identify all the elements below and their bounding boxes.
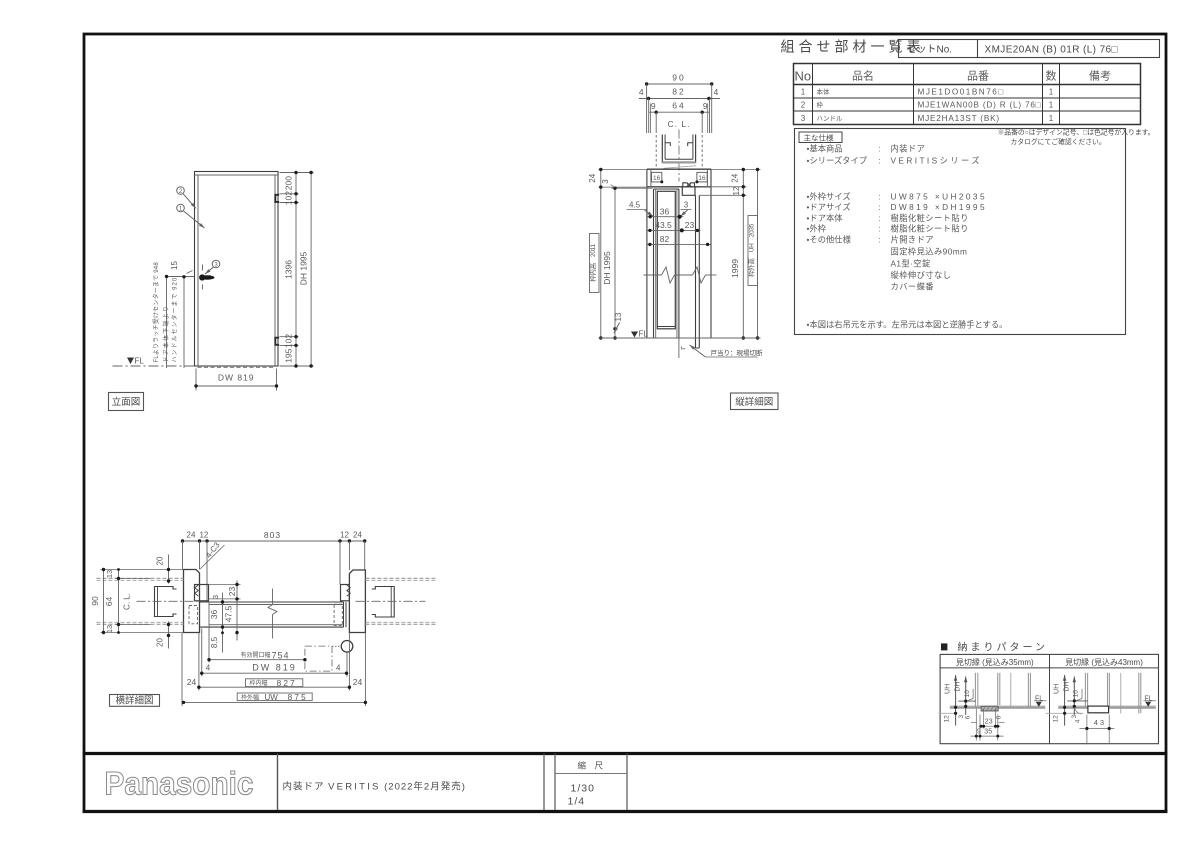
svg-text:UW875 ×UH2035: UW875 ×UH2035: [891, 192, 987, 202]
svg-text:DH: DH: [955, 681, 962, 691]
svg-text:16: 16: [698, 175, 706, 182]
svg-text:43: 43: [1094, 718, 1106, 727]
svg-text:枠内高 2011: 枠内高 2011: [588, 244, 597, 282]
svg-text:FLよりラッチ受けセンターまで 948: FLよりラッチ受けセンターまで 948: [152, 262, 160, 363]
svg-text:195: 195: [284, 348, 294, 362]
svg-text:枠外高 UH 2035: 枠外高 UH 2035: [746, 223, 755, 277]
svg-text:DW 819: DW 819: [218, 373, 255, 383]
svg-text:102: 102: [284, 334, 294, 348]
svg-text:C. L.: C. L.: [123, 593, 132, 610]
svg-text:90: 90: [672, 73, 685, 83]
svg-text:36: 36: [660, 206, 670, 216]
svg-text:43.5: 43.5: [655, 220, 672, 230]
svg-text:1/30: 1/30: [571, 783, 595, 795]
svg-text:•シリーズタイプ: •シリーズタイプ: [807, 156, 868, 166]
svg-text:803: 803: [264, 530, 281, 540]
svg-text:35: 35: [984, 729, 992, 736]
svg-text:A1型·空錠: A1型·空錠: [891, 259, 931, 269]
svg-text:23: 23: [685, 220, 695, 230]
svg-text::: :: [879, 202, 881, 212]
svg-text:24: 24: [187, 677, 197, 687]
svg-text:2: 2: [801, 101, 806, 110]
svg-text:12: 12: [199, 531, 208, 540]
svg-text:1: 1: [801, 88, 806, 97]
svg-text:数: 数: [1046, 70, 1057, 83]
svg-text:12: 12: [732, 186, 741, 195]
svg-text:64: 64: [672, 101, 685, 111]
svg-text:•本図は右吊元を示す。左吊元は本図と逆勝手とする。: •本図は右吊元を示す。左吊元は本図と逆勝手とする。: [807, 320, 1008, 330]
svg-text:1: 1: [1049, 114, 1054, 123]
svg-text:9: 9: [703, 101, 708, 111]
svg-text:見切縁 (見込み43mm): 見切縁 (見込み43mm): [1065, 657, 1143, 667]
svg-text:見切縁 (見込み35mm): 見切縁 (見込み35mm): [956, 657, 1034, 667]
svg-text:4: 4: [1074, 719, 1081, 723]
svg-text:•ドア本体: •ドア本体: [807, 213, 844, 223]
svg-text::: :: [879, 144, 881, 154]
svg-text:24: 24: [588, 173, 597, 182]
svg-text:6: 6: [996, 715, 1003, 719]
svg-text:3: 3: [601, 179, 610, 184]
svg-text::: :: [879, 224, 881, 234]
svg-text:200: 200: [284, 176, 294, 190]
svg-text:縦詳細図: 縦詳細図: [735, 396, 773, 408]
svg-text:1: 1: [1049, 88, 1054, 97]
svg-text:セットNo.: セットNo.: [907, 44, 953, 56]
svg-text:754: 754: [272, 651, 290, 661]
svg-text:縮 尺: 縮 尺: [578, 761, 604, 771]
svg-text:82: 82: [660, 234, 670, 244]
svg-text:47.5: 47.5: [223, 605, 233, 622]
svg-text:•外枠: •外枠: [807, 224, 827, 234]
svg-text::: :: [879, 156, 881, 166]
svg-text:•その他仕様: •その他仕様: [807, 235, 852, 245]
svg-text:立面図: 立面図: [112, 396, 141, 408]
svg-text:片開きドア: 片開きドア: [891, 235, 935, 245]
svg-text:固定枠見込み90mm: 固定枠見込み90mm: [891, 247, 968, 257]
svg-text:品名: 品名: [852, 69, 874, 83]
svg-text:9: 9: [651, 101, 656, 111]
svg-text:12: 12: [1052, 715, 1059, 723]
svg-text:102: 102: [284, 191, 294, 205]
svg-text:10: 10: [1073, 690, 1080, 698]
svg-text:4: 4: [206, 664, 211, 673]
svg-text:カタログにてご確認ください。: カタログにてご確認ください。: [1011, 137, 1106, 146]
svg-text:24: 24: [353, 531, 362, 540]
svg-text:DH: DH: [1064, 681, 1071, 691]
svg-text:VERITISシリーズ: VERITISシリーズ: [891, 156, 982, 166]
svg-text:有効開口幅: 有効開口幅: [241, 651, 271, 659]
svg-text:ドア本体下端より: ドア本体下端より: [162, 305, 170, 362]
svg-text:備考: 備考: [1089, 70, 1111, 83]
svg-text:16: 16: [653, 175, 661, 182]
svg-text:本体: 本体: [817, 87, 831, 96]
svg-text:36: 36: [209, 610, 219, 620]
svg-text:13: 13: [105, 570, 114, 578]
svg-text:82: 82: [672, 87, 685, 97]
svg-text:1999: 1999: [730, 259, 740, 278]
svg-text:64: 64: [104, 597, 114, 607]
svg-text:20: 20: [156, 638, 165, 647]
svg-text:10: 10: [964, 690, 971, 698]
svg-text::: :: [879, 213, 881, 223]
svg-text:品番: 品番: [967, 70, 989, 83]
svg-text:8.5: 8.5: [210, 636, 219, 648]
svg-text:1/4: 1/4: [568, 796, 586, 808]
svg-text:主な仕様: 主な仕様: [804, 133, 834, 143]
svg-text:6: 6: [964, 715, 971, 719]
svg-text:23: 23: [985, 719, 993, 726]
svg-text:UH: UH: [1053, 684, 1060, 694]
svg-text:UW: UW: [265, 693, 279, 702]
svg-text:13: 13: [105, 625, 114, 633]
svg-text:24: 24: [731, 173, 740, 182]
svg-text:DW819 ×DH1995: DW819 ×DH1995: [891, 202, 987, 212]
svg-text:24: 24: [187, 531, 196, 540]
svg-text:納まりパターン: 納まりパターン: [958, 641, 1049, 654]
svg-text:•ドアサイズ: •ドアサイズ: [807, 202, 851, 212]
svg-text:樹脂化粧シート貼り: 樹脂化粧シート貼り: [891, 224, 969, 234]
svg-text:•基本商品: •基本商品: [807, 144, 843, 154]
svg-text:23: 23: [227, 587, 237, 597]
svg-text:枠内幅: 枠内幅: [250, 679, 268, 687]
svg-text::: :: [879, 192, 881, 202]
svg-text:FL: FL: [639, 330, 649, 339]
svg-text:875: 875: [288, 692, 308, 702]
svg-text:Panasonic: Panasonic: [105, 766, 254, 802]
svg-text:組合せ部材一覧表: 組合せ部材一覧表: [781, 39, 925, 55]
svg-text:MJE2HA13ST (BK): MJE2HA13ST (BK): [918, 114, 1000, 123]
svg-text:12: 12: [340, 531, 349, 540]
svg-text:15: 15: [170, 261, 179, 270]
svg-text:3: 3: [801, 114, 806, 123]
svg-text:4: 4: [336, 664, 341, 673]
svg-text:•外枠サイズ: •外枠サイズ: [807, 192, 851, 202]
svg-text:横詳細図: 横詳細図: [115, 695, 153, 707]
svg-text:MJE1WAN00B (D) R (L) 76□: MJE1WAN00B (D) R (L) 76□: [918, 101, 1042, 110]
svg-text:縦枠伸び寸なし: 縦枠伸び寸なし: [891, 270, 952, 280]
svg-text:樹脂化粧シート貼り: 樹脂化粧シート貼り: [891, 213, 969, 223]
svg-text:No: No: [795, 69, 812, 84]
svg-text:FL: FL: [135, 357, 145, 366]
svg-text:内装ドア: 内装ドア: [891, 144, 926, 154]
svg-text:FL: FL: [1144, 696, 1152, 703]
svg-text:DH 1995: DH 1995: [298, 251, 308, 285]
svg-text:24: 24: [353, 677, 363, 687]
svg-text:ハンドルセンターまで 920: ハンドルセンターまで 920: [171, 277, 179, 363]
svg-text:4: 4: [639, 87, 644, 97]
svg-text:20: 20: [156, 556, 165, 565]
svg-text:13: 13: [614, 312, 623, 321]
svg-text:内装ドア VERITIS (2022年2月発売): 内装ドア VERITIS (2022年2月発売): [283, 781, 466, 793]
svg-text:4: 4: [714, 87, 719, 97]
svg-text:3: 3: [1071, 715, 1078, 719]
svg-text:FL: FL: [1035, 696, 1043, 703]
svg-text:1: 1: [1049, 101, 1054, 110]
svg-text:カバー蝶番: カバー蝶番: [891, 282, 935, 292]
svg-text:UH: UH: [944, 684, 951, 694]
svg-text:3: 3: [684, 201, 689, 210]
svg-text:戸当り：現場切断: 戸当り：現場切断: [711, 348, 764, 357]
svg-text:C. L.: C. L.: [668, 119, 691, 129]
svg-text:枠外幅: 枠外幅: [241, 693, 259, 701]
svg-text::: :: [879, 235, 881, 245]
svg-text:枠: 枠: [817, 100, 824, 109]
svg-text:1396: 1396: [284, 260, 294, 279]
svg-text:3: 3: [211, 595, 220, 599]
svg-text:827: 827: [277, 678, 297, 688]
svg-text:ハンドル: ハンドル: [817, 115, 844, 122]
svg-text:XMJE20AN (B) 01R (L) 76□: XMJE20AN (B) 01R (L) 76□: [985, 45, 1118, 56]
svg-text:90: 90: [90, 596, 100, 606]
svg-text:MJE1DO01BN76□: MJE1DO01BN76□: [918, 88, 1005, 97]
svg-text:DW 819: DW 819: [252, 662, 297, 672]
svg-text:4.5: 4.5: [629, 201, 641, 210]
svg-text:12: 12: [943, 715, 950, 723]
svg-text:DH 1995: DH 1995: [602, 251, 612, 285]
